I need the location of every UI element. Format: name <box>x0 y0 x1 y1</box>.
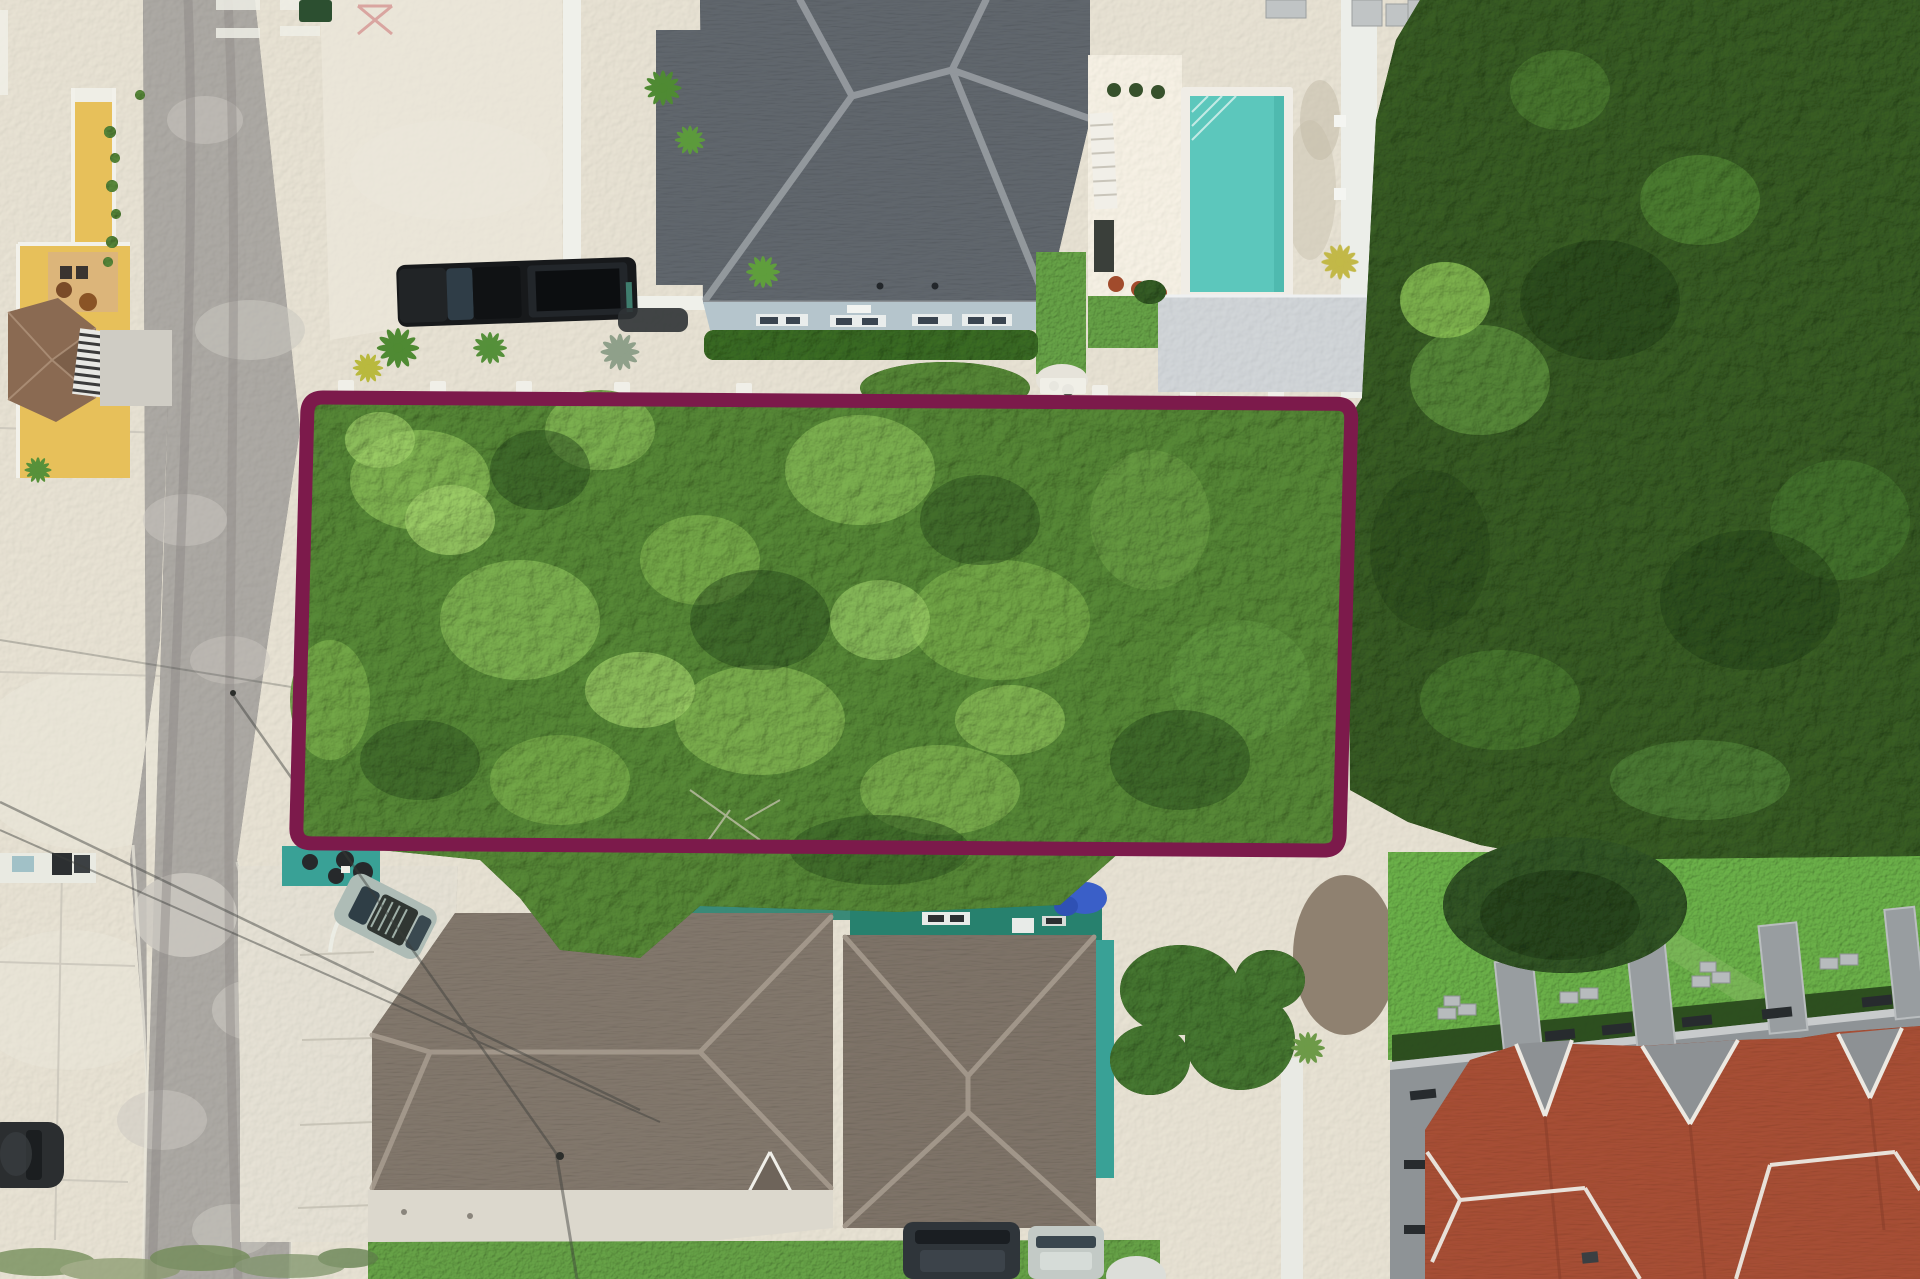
canopy-highlight <box>675 665 845 775</box>
white-railing <box>0 10 8 95</box>
canopy-shadow <box>920 475 1040 565</box>
shed-corner-tree <box>1134 280 1166 304</box>
white-paper <box>341 866 350 873</box>
utility-pole <box>556 1152 564 1160</box>
truck-accent <box>626 282 633 312</box>
lawn-tree-shadow <box>1480 870 1640 960</box>
canopy-highlight <box>440 560 600 680</box>
canopy-shadow <box>490 430 590 510</box>
dark-bench <box>1094 220 1114 272</box>
canopy-bright <box>345 412 415 468</box>
truck-cab-roof <box>472 266 522 320</box>
green-dumpster <box>299 0 332 22</box>
brown-roof-houses <box>368 913 1096 1242</box>
canopy-shadow <box>690 570 830 670</box>
plant-pots-green <box>1107 83 1165 99</box>
planter-box <box>76 266 88 279</box>
yellow-building-white-band <box>73 88 114 104</box>
walkway-post <box>401 1209 407 1215</box>
forest-shadow <box>1370 470 1490 630</box>
skylight <box>1582 1251 1599 1264</box>
silver-car-bottom <box>1028 1226 1104 1279</box>
canopy-bright <box>405 485 495 555</box>
white-fence <box>216 0 260 10</box>
canopy-bright <box>585 652 695 728</box>
aerial-photo <box>0 0 1920 1279</box>
brown-plant <box>79 293 97 311</box>
white-fence <box>216 28 260 38</box>
townhouse-left-wall <box>1390 1127 1425 1279</box>
canopy-highlight <box>910 560 1090 680</box>
black-car-left <box>0 1122 64 1188</box>
forest-highlight <box>1510 50 1610 130</box>
forest-shadow <box>1660 530 1840 670</box>
truck-windshield <box>446 268 474 321</box>
white-fence <box>280 26 320 36</box>
brown-plant <box>56 282 72 298</box>
canopy-shadow <box>1110 710 1250 810</box>
canopy-highlight <box>1090 450 1210 590</box>
roof-vent <box>877 283 884 290</box>
forest <box>1348 0 1920 860</box>
roof-left-wing <box>656 30 706 285</box>
utility-pole <box>230 690 236 696</box>
roadside-bushes <box>1110 945 1305 1095</box>
planter-box <box>60 266 72 279</box>
forest-highlight <box>1400 262 1490 338</box>
gray-roof-house <box>656 0 1090 330</box>
canopy-bright <box>830 580 930 660</box>
dark-suv <box>903 1222 1020 1279</box>
forest-highlight <box>1640 155 1760 245</box>
walkway <box>368 1190 833 1242</box>
white-wall-vertical <box>563 0 581 302</box>
truck-bed-interior <box>535 268 620 311</box>
forest-highlight <box>1420 650 1580 750</box>
forest-highlight <box>1410 325 1550 435</box>
utility-pads <box>0 853 96 883</box>
forest-highlight <box>1610 740 1790 820</box>
walkway-post <box>467 1213 473 1219</box>
canopy-shadow <box>360 720 480 800</box>
front-lawn-strip <box>1036 252 1086 374</box>
forest-shadow <box>1520 240 1680 360</box>
white-wall-strip <box>1281 1058 1303 1279</box>
aerial-photo-canvas <box>0 0 1920 1279</box>
pool-shed-roof <box>1158 296 1385 392</box>
truck-hood <box>398 267 448 323</box>
wall-ac-unit <box>847 305 871 313</box>
dark-car-blob <box>618 308 688 332</box>
canopy-highlight <box>490 735 630 825</box>
roof-vent <box>932 283 939 290</box>
pool-water-edge-shade <box>1274 96 1284 292</box>
canopy-bright <box>955 685 1065 755</box>
hedge <box>704 330 1038 360</box>
gazebo-concrete-pad <box>100 330 172 406</box>
canopy-highlight <box>785 415 935 525</box>
dirt-patch <box>1293 875 1397 1035</box>
pool-water <box>1190 96 1284 292</box>
house-windows <box>756 314 1012 327</box>
black-pickup-truck <box>396 257 638 327</box>
yellow-building-upper <box>73 102 114 242</box>
